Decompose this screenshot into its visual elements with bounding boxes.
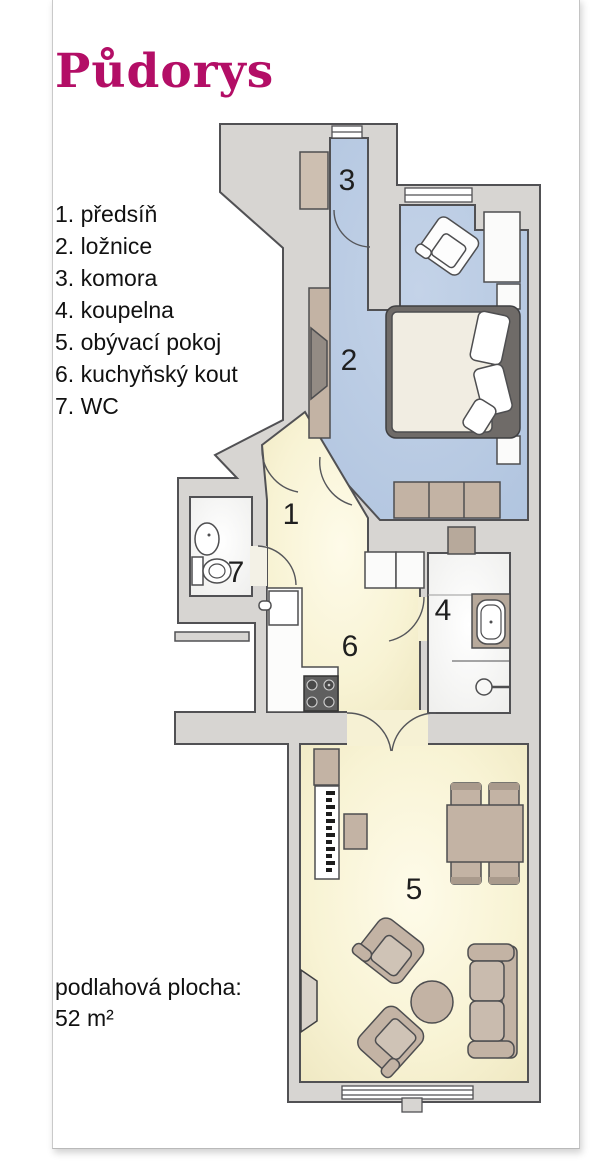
stove <box>304 676 338 711</box>
legend-item-komora: 3. komora <box>55 262 238 294</box>
dining-chair <box>489 860 519 884</box>
kitchen-cabinet <box>396 552 424 588</box>
legend-item-obyvaci-pokoj: 5. obývací pokoj <box>55 326 238 358</box>
dining-chair <box>451 860 481 884</box>
kitchen-tap <box>259 601 271 610</box>
closet-top-right <box>484 212 520 282</box>
floor-area-note: podlahová plocha: 52 m² <box>55 972 242 1034</box>
page-title: Půdorys <box>55 44 274 99</box>
sofa <box>468 944 517 1058</box>
dresser <box>394 482 500 518</box>
wc-door-opening <box>250 546 267 586</box>
dining-chair <box>489 783 519 807</box>
dining-table <box>447 805 523 862</box>
wc-sink <box>195 523 219 555</box>
nightstand-bottom <box>497 436 520 464</box>
legend-item-loznice: 2. ložnice <box>55 230 238 262</box>
legend-item-wc: 7. WC <box>55 390 238 422</box>
kitchen-sink <box>269 591 298 625</box>
legend-item-kuchynsky-kout: 6. kuchyňský kout <box>55 358 238 390</box>
room-label-7: 7 <box>228 556 245 589</box>
magazine-page: 1 2 3 4 5 6 7 Půdorys 1. předsíň 2. ložn… <box>0 0 600 1175</box>
room-label-2: 2 <box>341 344 358 377</box>
room-label-1: 1 <box>283 498 300 531</box>
legend-item-koupelna: 4. koupelna <box>55 294 238 326</box>
room-label-5: 5 <box>406 873 423 906</box>
window-living <box>342 1086 473 1112</box>
window-bedroom <box>405 188 472 202</box>
legend: 1. předsíň 2. ložnice 3. komora 4. koupe… <box>55 198 238 422</box>
room-label-4: 4 <box>435 594 452 627</box>
komora-shelf <box>300 152 328 209</box>
corridor-wall-stub <box>175 632 249 641</box>
room-label-6: 6 <box>342 630 359 663</box>
legend-item-predsin: 1. předsíň <box>55 198 238 230</box>
bed <box>386 306 520 438</box>
kitchen-cabinet <box>365 552 396 588</box>
piano <box>315 786 339 879</box>
french-door-opening <box>347 710 428 746</box>
coffee-table <box>411 981 453 1023</box>
duct <box>448 527 475 554</box>
floor-area-label: podlahová plocha: <box>55 972 242 1003</box>
dining-chair <box>451 783 481 807</box>
cabinet-small <box>314 749 339 785</box>
piano-bench <box>344 814 367 849</box>
tv-bedroom <box>311 328 327 399</box>
balcony-sill <box>402 1098 422 1112</box>
room-label-3: 3 <box>339 164 356 197</box>
tv-living <box>301 970 317 1032</box>
toilet-tank <box>192 557 203 585</box>
shower-head <box>476 679 492 695</box>
window-komora <box>332 126 362 138</box>
floor-area-value: 52 m² <box>55 1003 242 1034</box>
